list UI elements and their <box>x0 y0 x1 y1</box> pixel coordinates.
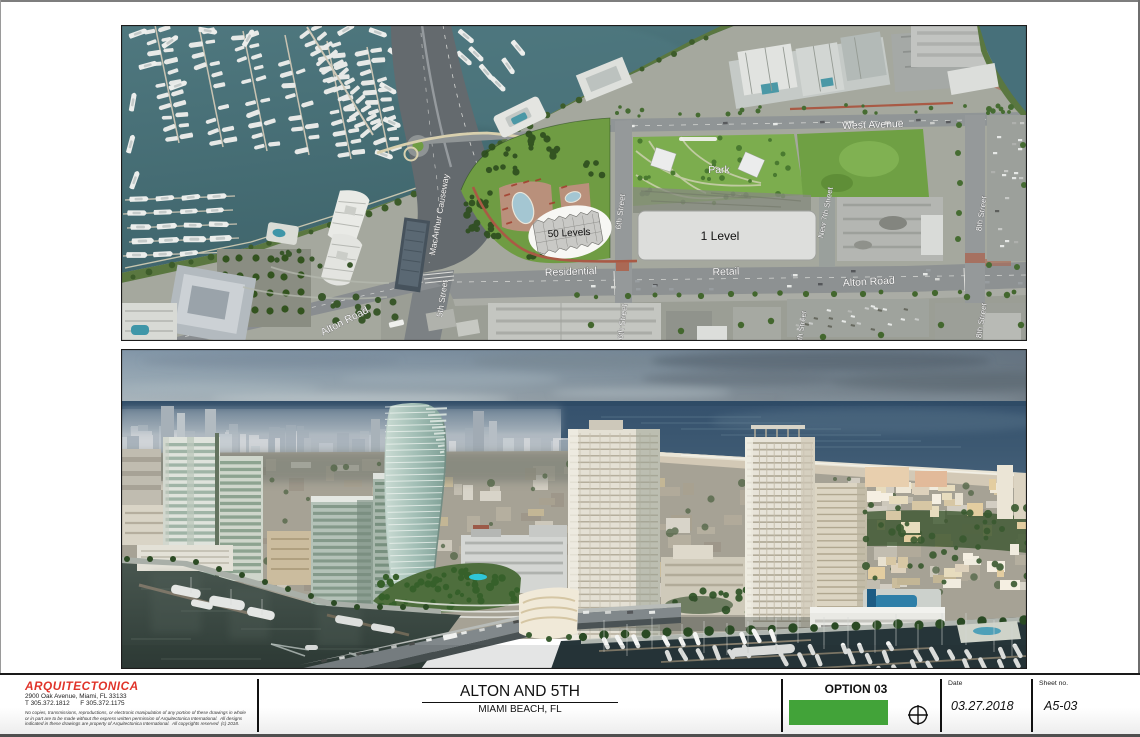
svg-text:Residential: Residential <box>545 265 597 279</box>
svg-text:West Avenue: West Avenue <box>842 118 904 132</box>
svg-text:1 Level: 1 Level <box>701 229 740 243</box>
svg-text:Retail: Retail <box>712 266 739 279</box>
svg-text:50 Levels: 50 Levels <box>547 227 590 240</box>
svg-text:Park: Park <box>708 164 730 176</box>
